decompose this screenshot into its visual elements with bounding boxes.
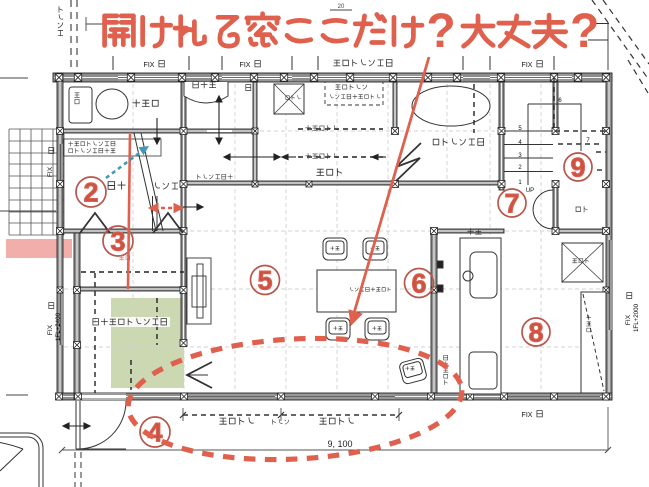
svg-text:FIX: FIX	[522, 412, 533, 419]
svg-text:FIX: FIX	[625, 314, 632, 325]
svg-text:9, 100: 9, 100	[327, 439, 352, 449]
svg-text:FIX: FIX	[522, 62, 533, 69]
svg-text:1FL+2400: 1FL+2400	[55, 312, 62, 341]
svg-text:FIX: FIX	[47, 324, 54, 335]
svg-text:FIX: FIX	[47, 166, 54, 177]
svg-text:FIX: FIX	[144, 62, 155, 69]
svg-text:7: 7	[504, 189, 519, 219]
svg-text:9: 9	[570, 153, 585, 183]
svg-text:3: 3	[110, 227, 125, 257]
svg-text:20: 20	[338, 4, 345, 10]
svg-text:8: 8	[528, 318, 543, 348]
svg-text:5: 5	[257, 266, 272, 296]
svg-text:UP: UP	[526, 188, 534, 194]
svg-text:?: ?	[426, 5, 455, 58]
svg-text:2: 2	[83, 178, 98, 208]
svg-text:?: ?	[570, 5, 599, 58]
svg-text:FIX: FIX	[240, 62, 251, 69]
svg-text:1FL+2000: 1FL+2000	[633, 303, 640, 332]
svg-text:6: 6	[411, 269, 426, 299]
